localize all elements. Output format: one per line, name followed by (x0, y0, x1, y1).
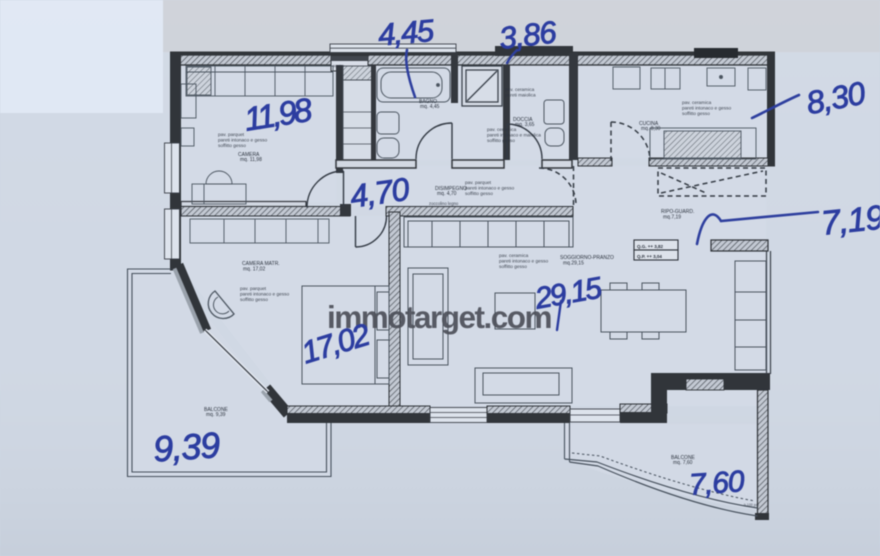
svg-text:pareti intonaco e gesso: pareti intonaco e gesso (218, 138, 267, 144)
svg-text:soffitto gesso: soffitto gesso (499, 264, 527, 270)
svg-text:mq. 11,98: mq. 11,98 (240, 157, 262, 163)
svg-text:mq. 4,70: mq. 4,70 (437, 191, 457, 197)
svg-text:soffitto gesso: soffitto gesso (487, 138, 515, 144)
svg-text:pav. ceramica: pav. ceramica (505, 87, 535, 93)
svg-text:pareti intonaco e gesso: pareti intonaco e gesso (240, 292, 289, 298)
svg-text:pareti intonaco e maiolica: pareti intonaco e maiolica (487, 133, 541, 139)
svg-text:mq. 7,60: mq. 7,60 (673, 460, 693, 466)
svg-text:Q.G. ++ 3,82: Q.G. ++ 3,82 (637, 244, 664, 249)
svg-text:pareti maiolica: pareti maiolica (505, 93, 536, 99)
svg-text:pareti intonaco e gesso: pareti intonaco e gesso (499, 259, 548, 265)
svg-text:soffitto gesso: soffitto gesso (240, 297, 268, 303)
svg-text:h.100 par.: h.100 par. (744, 503, 760, 507)
svg-text:zoccolino legno: zoccolino legno (429, 201, 459, 206)
svg-text:pav. parquet: pav. parquet (465, 180, 492, 186)
svg-text:soffitto gesso: soffitto gesso (218, 143, 246, 149)
svg-text:pareti intonaco e gesso: pareti intonaco e gesso (682, 106, 731, 112)
svg-text:soffitto gesso: soffitto gesso (465, 191, 493, 197)
svg-text:pav. parquet: pav. parquet (240, 286, 267, 292)
svg-text:mq. 8,30: mq. 8,30 (641, 126, 661, 132)
svg-text:Q.P. ++ 3,04: Q.P. ++ 3,04 (637, 254, 662, 259)
svg-text:mq.29,15: mq.29,15 (563, 261, 584, 267)
svg-text:soffitto gesso: soffitto gesso (682, 111, 710, 117)
svg-text:3,86: 3,86 (497, 14, 559, 56)
svg-text:mq. 4,45: mq. 4,45 (420, 104, 440, 110)
svg-text:mq.7,19: mq.7,19 (663, 215, 681, 221)
svg-text:7,19: 7,19 (819, 198, 880, 242)
svg-text:mq. 9,39: mq. 9,39 (206, 412, 226, 418)
svg-text:7,60: 7,60 (688, 465, 746, 502)
svg-text:9,39: 9,39 (152, 424, 222, 470)
svg-text:pareti intonaco e gesso: pareti intonaco e gesso (465, 186, 514, 192)
svg-text:pav. parquet: pav. parquet (218, 132, 245, 138)
svg-text:mq. 17,02: mq. 17,02 (243, 267, 265, 273)
svg-text:pav. ceramica: pav. ceramica (499, 253, 529, 259)
svg-text:pav. ceramica: pav. ceramica (682, 100, 712, 106)
svg-text:4,45: 4,45 (377, 13, 436, 53)
svg-text:pav. ceramica: pav. ceramica (487, 127, 517, 133)
svg-text:scarico: scarico (333, 64, 344, 68)
svg-text:mq. 3,65: mq. 3,65 (515, 122, 535, 128)
